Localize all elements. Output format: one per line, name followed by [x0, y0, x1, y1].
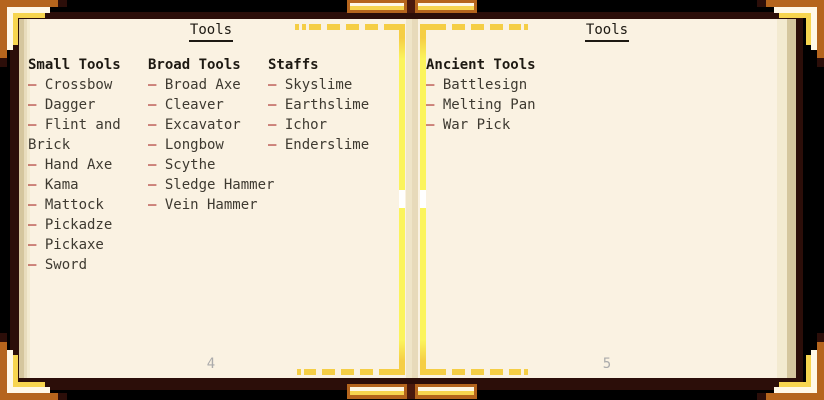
bullet-dash: – — [148, 117, 165, 133]
item-label: Pickaxe — [45, 237, 104, 253]
item-label: Skyslime — [285, 77, 352, 93]
list-item[interactable]: – Hand Axe — [28, 155, 149, 175]
category-column: Small Tools – Crossbow– Dagger– Flint an… — [28, 55, 149, 275]
category-heading: Staffs — [268, 55, 400, 75]
bullet-dash: – — [148, 177, 165, 193]
bullet-dash: – — [28, 197, 45, 213]
list-item[interactable]: – Flint and Brick — [28, 115, 149, 155]
list-item[interactable]: – War Pick — [426, 115, 636, 135]
book-screen: Tools Small Tools – Crossbow– Dagger– Fl… — [0, 0, 824, 400]
bullet-dash: – — [28, 217, 45, 233]
list-item[interactable]: – Mattock — [28, 195, 149, 215]
category-list: – Broad Axe– Cleaver– Excavator– Longbow… — [148, 75, 280, 215]
item-label: Ichor — [285, 117, 327, 133]
list-item[interactable]: – Broad Axe — [148, 75, 280, 95]
item-label: Sword — [45, 257, 87, 273]
bullet-dash: – — [148, 137, 165, 153]
category-heading: Ancient Tools — [426, 55, 636, 75]
item-label: Longbow — [165, 137, 224, 153]
book-pages: Tools Small Tools – Crossbow– Dagger– Fl… — [0, 0, 824, 400]
item-label: Earthslime — [285, 97, 369, 113]
page-number: 5 — [420, 356, 794, 372]
list-item[interactable]: – Crossbow — [28, 75, 149, 95]
bullet-dash: – — [28, 97, 45, 113]
bullet-dash: – — [426, 77, 443, 93]
bullet-dash: – — [28, 257, 45, 273]
page-title-text: Tools — [585, 21, 629, 42]
list-item[interactable]: – Sword — [28, 255, 149, 275]
list-item[interactable]: – Excavator — [148, 115, 280, 135]
list-item[interactable]: – Ichor — [268, 115, 400, 135]
bullet-dash: – — [28, 177, 45, 193]
bullet-dash: – — [268, 137, 285, 153]
item-label: Kama — [45, 177, 79, 193]
bullet-dash: – — [268, 77, 285, 93]
page-title: Tools — [24, 21, 398, 42]
page-number: 4 — [24, 356, 398, 372]
list-item[interactable]: – Pickaxe — [28, 235, 149, 255]
list-item[interactable]: – Dagger — [28, 95, 149, 115]
category-column: Staffs – Skyslime– Earthslime– Ichor– En… — [268, 55, 400, 155]
item-label: Excavator — [165, 117, 241, 133]
list-item[interactable]: – Pickadze — [28, 215, 149, 235]
item-label: Cleaver — [165, 97, 224, 113]
bullet-dash: – — [148, 197, 165, 213]
bullet-dash: – — [28, 117, 45, 133]
bullet-dash: – — [148, 77, 165, 93]
item-label: Melting Pan — [443, 97, 536, 113]
item-label: Enderslime — [285, 137, 369, 153]
category-list: – Battlesign– Melting Pan– War Pick — [426, 75, 636, 135]
item-label: Vein Hammer — [165, 197, 258, 213]
item-label: Sledge Hammer — [165, 177, 275, 193]
category-list: – Crossbow– Dagger– Flint and Brick– Han… — [28, 75, 149, 275]
list-item[interactable]: – Vein Hammer — [148, 195, 280, 215]
bullet-dash: – — [28, 237, 45, 253]
bullet-dash: – — [268, 117, 285, 133]
list-item[interactable]: – Sledge Hammer — [148, 175, 280, 195]
item-label: Dagger — [45, 97, 96, 113]
list-item[interactable]: – Kama — [28, 175, 149, 195]
page-title: Tools — [420, 21, 794, 42]
category-heading: Small Tools — [28, 55, 149, 75]
list-item[interactable]: – Battlesign — [426, 75, 636, 95]
category-column: Ancient Tools – Battlesign– Melting Pan–… — [426, 55, 636, 135]
bullet-dash: – — [426, 97, 443, 113]
list-item[interactable]: – Skyslime — [268, 75, 400, 95]
category-column: Broad Tools – Broad Axe– Cleaver– Excava… — [148, 55, 280, 215]
category-list: – Skyslime– Earthslime– Ichor– Enderslim… — [268, 75, 400, 155]
category-heading: Broad Tools — [148, 55, 280, 75]
bullet-dash: – — [426, 117, 443, 133]
bullet-dash: – — [268, 97, 285, 113]
list-item[interactable]: – Melting Pan — [426, 95, 636, 115]
item-label: Mattock — [45, 197, 104, 213]
bullet-dash: – — [28, 157, 45, 173]
item-label: Hand Axe — [45, 157, 112, 173]
item-label: Scythe — [165, 157, 216, 173]
list-item[interactable]: – Earthslime — [268, 95, 400, 115]
item-label: Broad Axe — [165, 77, 241, 93]
bullet-dash: – — [148, 157, 165, 173]
item-label: Pickadze — [45, 217, 112, 233]
item-label: Battlesign — [443, 77, 527, 93]
list-item[interactable]: – Longbow — [148, 135, 280, 155]
bullet-dash: – — [28, 77, 45, 93]
page-title-text: Tools — [189, 21, 233, 42]
list-item[interactable]: – Enderslime — [268, 135, 400, 155]
item-label: War Pick — [443, 117, 510, 133]
list-item[interactable]: – Cleaver — [148, 95, 280, 115]
list-item[interactable]: – Scythe — [148, 155, 280, 175]
bullet-dash: – — [148, 97, 165, 113]
item-label: Crossbow — [45, 77, 112, 93]
